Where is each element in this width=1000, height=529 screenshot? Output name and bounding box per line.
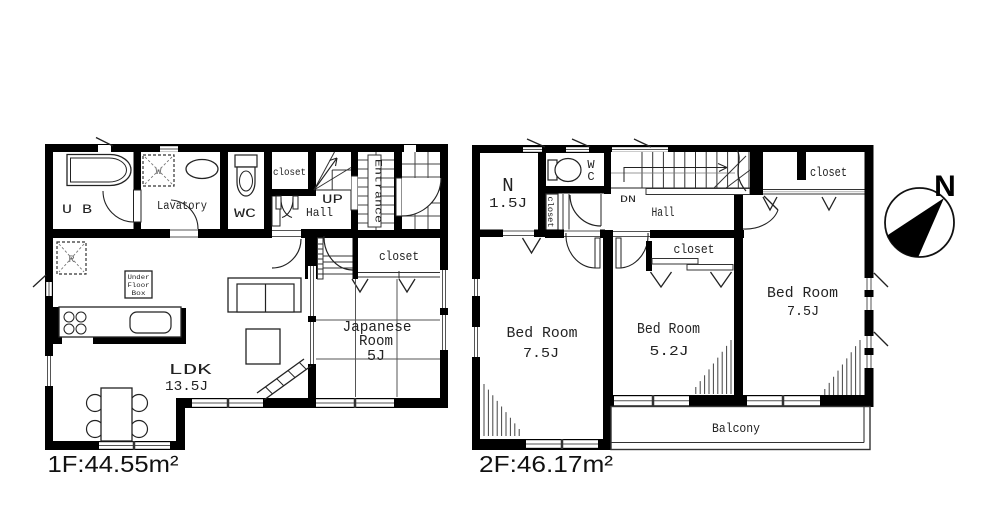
svg-text:closet: closet: [674, 242, 715, 257]
svg-text:closet: closet: [545, 197, 555, 228]
svg-text:Bed Room: Bed Room: [767, 285, 838, 302]
svg-text:Entrance: Entrance: [372, 159, 383, 223]
svg-text:closet: closet: [810, 165, 847, 180]
svg-text:Floor: Floor: [128, 282, 150, 289]
svg-text:13.5J: 13.5J: [165, 379, 208, 395]
svg-text:closet: closet: [379, 250, 419, 264]
svg-text:U B: U B: [62, 202, 92, 217]
svg-text:Under: Under: [128, 274, 150, 281]
svg-text:Box: Box: [132, 290, 146, 297]
svg-text:closet: closet: [273, 167, 306, 179]
svg-text:LDK: LDK: [169, 362, 212, 379]
svg-text:1.5J: 1.5J: [489, 196, 527, 212]
svg-text:5.2J: 5.2J: [650, 344, 689, 360]
svg-text:Hall: Hall: [652, 205, 675, 220]
svg-text:Bed Room: Bed Room: [507, 325, 578, 342]
svg-text:7.5J: 7.5J: [523, 346, 559, 362]
svg-text:N: N: [934, 170, 956, 203]
svg-text:UP: UP: [322, 192, 343, 207]
svg-text:Lavatory: Lavatory: [157, 200, 207, 213]
svg-text:Balcony: Balcony: [712, 422, 760, 436]
svg-text:R: R: [68, 255, 74, 266]
svg-text:7.5J: 7.5J: [787, 304, 819, 320]
svg-text:W: W: [155, 167, 161, 178]
svg-text:N: N: [502, 175, 513, 197]
svg-text:5J: 5J: [367, 348, 385, 365]
svg-text:C: C: [587, 170, 594, 184]
svg-text:1F:44.55m²: 1F:44.55m²: [48, 451, 179, 477]
svg-text:WC: WC: [234, 206, 256, 221]
svg-text:Hall: Hall: [306, 206, 333, 220]
svg-text:DN: DN: [620, 194, 636, 206]
svg-text:2F:46.17m²: 2F:46.17m²: [479, 451, 613, 477]
svg-text:Bed Room: Bed Room: [637, 321, 700, 338]
